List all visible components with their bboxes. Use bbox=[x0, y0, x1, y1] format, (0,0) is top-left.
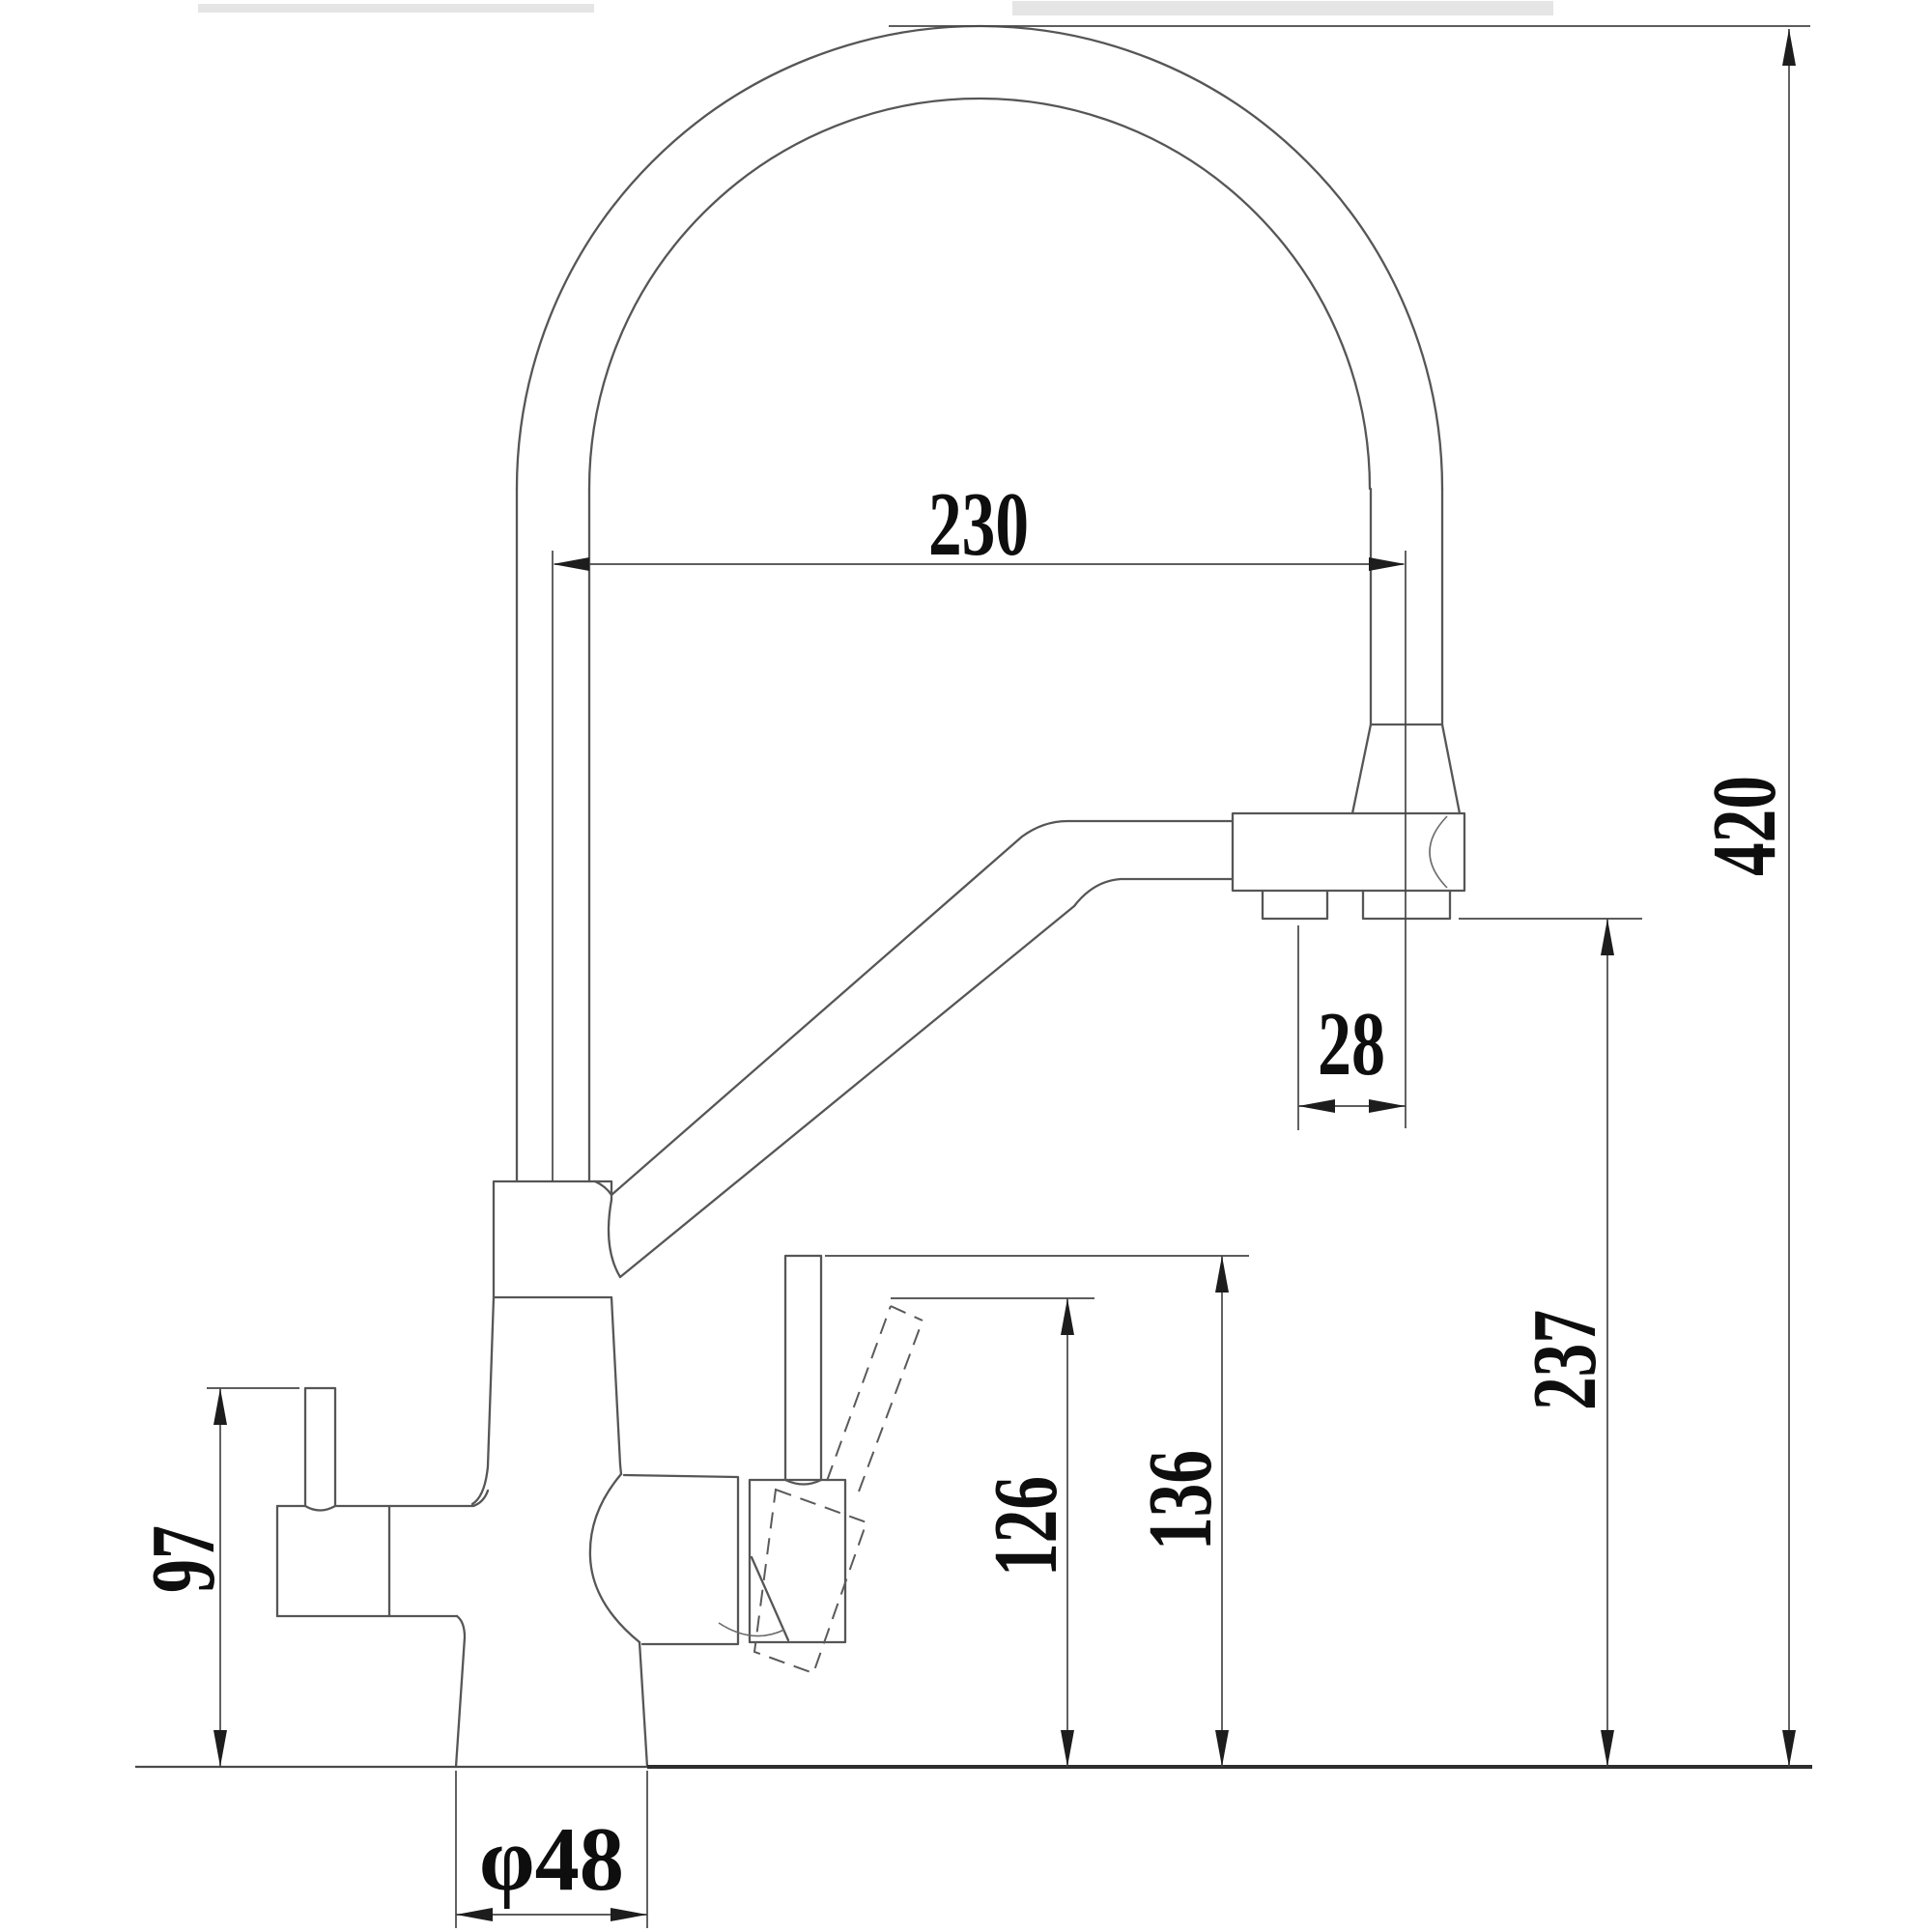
dim-97-label: 97 bbox=[133, 1525, 234, 1593]
dim-126-label: 126 bbox=[976, 1476, 1076, 1577]
dim-126-arrow-bottom bbox=[1061, 1730, 1074, 1767]
dim-230-arrow-left bbox=[553, 557, 589, 571]
gooseneck-outer-arc bbox=[517, 26, 1442, 489]
handle-pivot-arc bbox=[719, 1623, 784, 1636]
nozzle-right bbox=[1363, 891, 1450, 919]
handle-boss bbox=[624, 1475, 738, 1644]
filter-spout-top bbox=[277, 1491, 488, 1511]
dim-237-arrow-bottom bbox=[1601, 1730, 1614, 1767]
body-left-edge bbox=[472, 1297, 494, 1504]
faucet-technical-drawing-page: 230 420 28 237 136 126 bbox=[0, 0, 1932, 1932]
dim-136-label: 136 bbox=[1130, 1450, 1231, 1550]
mixer-handle-bar bbox=[785, 1256, 821, 1485]
supply-pipe-upper bbox=[595, 821, 1233, 1195]
dashed-handle-bar bbox=[827, 1306, 923, 1492]
scan-artifact-left bbox=[198, 4, 594, 13]
gooseneck-inner-arc bbox=[589, 99, 1370, 489]
dim-136-arrow-top bbox=[1215, 1256, 1229, 1293]
dim-48-label: φ48 bbox=[479, 1809, 624, 1910]
faucet-outline bbox=[135, 26, 1812, 1767]
dim-237-arrow-top bbox=[1601, 919, 1614, 955]
handle-joint-block bbox=[750, 1480, 845, 1642]
dim-230-arrow-right bbox=[1369, 557, 1406, 571]
faucet-dimension-drawing: 230 420 28 237 136 126 bbox=[0, 0, 1932, 1932]
dim-48-arrow-right bbox=[611, 1908, 647, 1921]
dimension-97: 97 bbox=[133, 1388, 299, 1767]
dim-28-label: 28 bbox=[1318, 994, 1385, 1094]
dim-237-label: 237 bbox=[1515, 1310, 1615, 1410]
dim-420-arrow-bottom bbox=[1782, 1730, 1796, 1767]
dim-420-arrow-top bbox=[1782, 29, 1796, 66]
nozzle-left bbox=[1263, 891, 1327, 919]
mixer-handle-dashed-position bbox=[754, 1306, 923, 1673]
dim-97-arrow-top bbox=[213, 1388, 227, 1425]
dim-97-arrow-bottom bbox=[213, 1730, 227, 1767]
dim-28-arrow-left bbox=[1298, 1099, 1335, 1113]
dimension-28: 28 bbox=[1298, 925, 1406, 1130]
dim-420-label: 420 bbox=[1694, 776, 1795, 876]
dim-28-arrow-right bbox=[1369, 1099, 1406, 1113]
body-base-right bbox=[639, 1642, 647, 1767]
dimension-237: 237 bbox=[1459, 919, 1642, 1767]
dim-126-arrow-top bbox=[1061, 1298, 1074, 1335]
dashed-handle-cap bbox=[754, 1490, 867, 1673]
supply-pipe-lower bbox=[609, 879, 1233, 1277]
dim-136-arrow-bottom bbox=[1215, 1730, 1229, 1767]
dim-48-arrow-left bbox=[456, 1908, 493, 1921]
dimension-230: 230 bbox=[553, 474, 1406, 1181]
dim-230-label: 230 bbox=[928, 474, 1029, 575]
scan-artifact-right bbox=[1012, 1, 1553, 15]
filter-spout-tab bbox=[305, 1388, 335, 1506]
body-base-left bbox=[456, 1616, 465, 1767]
dimension-base-diameter: φ48 bbox=[456, 1771, 647, 1928]
body-right-edge bbox=[611, 1297, 621, 1474]
spray-head-shading-curve bbox=[1430, 816, 1447, 888]
body-waist bbox=[590, 1474, 639, 1642]
dimension-126: 126 bbox=[891, 1298, 1094, 1767]
neck-connector bbox=[494, 1181, 611, 1297]
